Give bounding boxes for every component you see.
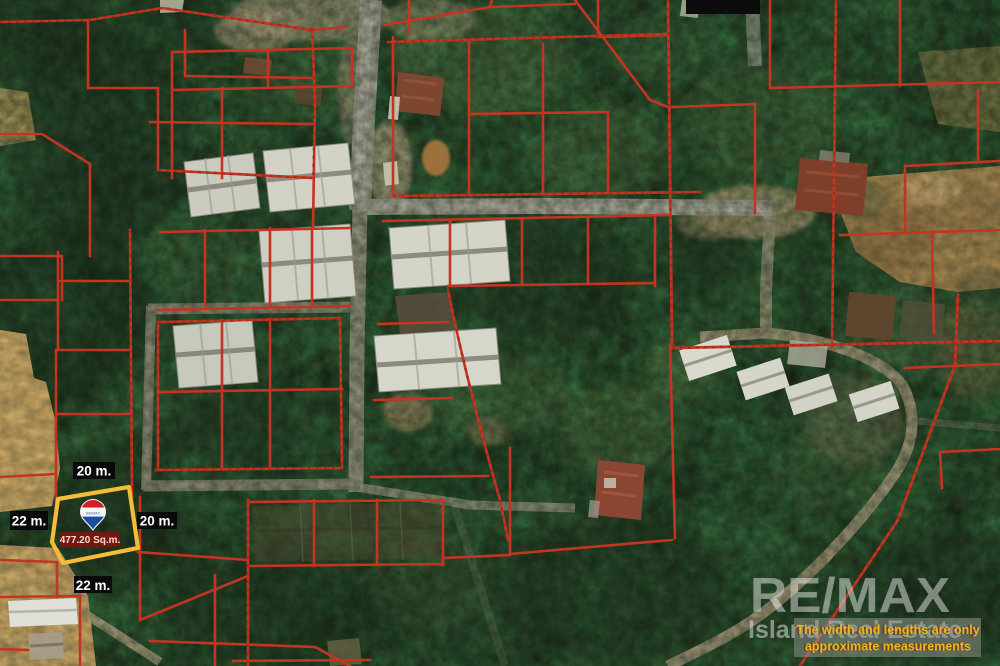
svg-text:RE/MAX: RE/MAX (86, 512, 101, 516)
svg-text:The width and lengths are only: The width and lengths are only (796, 623, 979, 637)
svg-text:477.20 Sq.m.: 477.20 Sq.m. (60, 535, 121, 546)
svg-text:22 m.: 22 m. (12, 514, 47, 529)
svg-text:RE/MAX: RE/MAX (750, 569, 950, 623)
svg-text:22 m.: 22 m. (76, 578, 111, 593)
svg-text:approximate measurements: approximate measurements (805, 640, 971, 654)
svg-text:20 m.: 20 m. (77, 463, 112, 478)
svg-text:20 m.: 20 m. (140, 514, 175, 529)
